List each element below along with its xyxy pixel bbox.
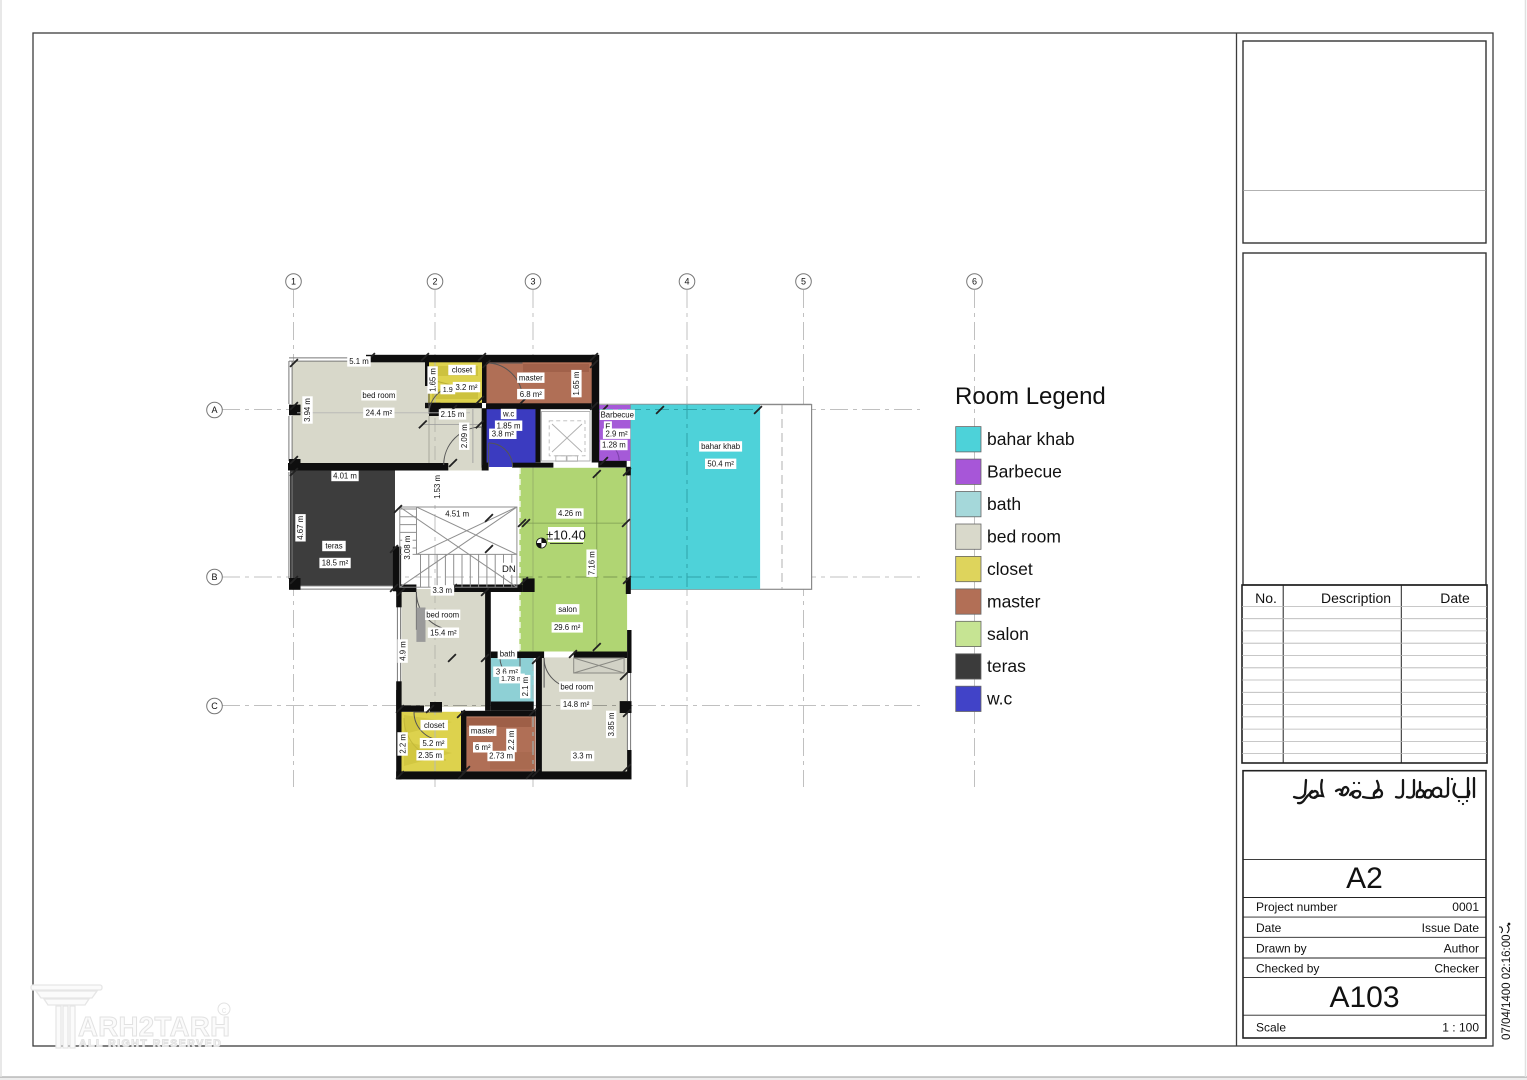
svg-text:4.9 m: 4.9 m: [398, 641, 407, 661]
svg-text:1.53 m: 1.53 m: [433, 475, 442, 499]
svg-text:3.3 m: 3.3 m: [433, 586, 453, 595]
svg-text:2.2 m: 2.2 m: [507, 731, 516, 751]
svg-text:2: 2: [432, 277, 437, 287]
svg-text:C: C: [211, 701, 218, 711]
svg-text:Barbecue: Barbecue: [987, 462, 1062, 482]
svg-text:1: 1: [291, 277, 296, 287]
svg-text:closet: closet: [987, 559, 1033, 579]
svg-text:bed room: bed room: [362, 391, 395, 400]
svg-text:Room Legend: Room Legend: [955, 383, 1106, 410]
svg-text:closet: closet: [424, 721, 445, 730]
svg-text:bed room: bed room: [560, 682, 593, 691]
svg-text:5.1 m: 5.1 m: [349, 357, 369, 366]
svg-text:No.: No.: [1255, 590, 1277, 606]
svg-text:A2: A2: [1346, 862, 1383, 895]
svg-text:6: 6: [972, 277, 977, 287]
svg-text:2.2 m: 2.2 m: [398, 734, 407, 754]
svg-text:1.65 m: 1.65 m: [428, 368, 437, 392]
svg-text:A103: A103: [1329, 981, 1399, 1014]
svg-text:Issue Date: Issue Date: [1422, 921, 1480, 935]
svg-text:teras: teras: [987, 656, 1026, 676]
svg-text:bed room: bed room: [987, 527, 1061, 547]
svg-text:4: 4: [684, 277, 689, 287]
svg-text:18.5 m²: 18.5 m²: [322, 559, 349, 568]
svg-text:closet: closet: [452, 366, 473, 375]
svg-text:4.67 m: 4.67 m: [296, 516, 305, 540]
svg-text:3: 3: [530, 277, 535, 287]
svg-text:2.9 m²: 2.9 m²: [606, 429, 628, 438]
svg-text:Project number: Project number: [1256, 900, 1337, 914]
svg-text:29.6 m²: 29.6 m²: [554, 623, 581, 632]
svg-text:teras: teras: [325, 542, 342, 551]
svg-text:bed room: bed room: [426, 611, 459, 620]
svg-text:3.2 m²: 3.2 m²: [455, 383, 477, 392]
svg-text:salon: salon: [558, 605, 577, 614]
svg-text:bahar khab: bahar khab: [701, 442, 741, 451]
svg-text:5: 5: [801, 277, 806, 287]
svg-text:Date: Date: [1256, 921, 1282, 935]
svg-text:4.51 m: 4.51 m: [445, 510, 469, 519]
svg-text:Drawn by: Drawn by: [1256, 942, 1307, 956]
svg-text:master: master: [519, 373, 543, 382]
svg-text:2.1 m: 2.1 m: [521, 677, 530, 697]
svg-text:6.8 m²: 6.8 m²: [520, 390, 542, 399]
svg-text:24.4 m²: 24.4 m²: [366, 409, 393, 418]
svg-text:2.73 m: 2.73 m: [489, 752, 513, 761]
svg-text:bath: bath: [987, 494, 1021, 514]
svg-text:3.94 m: 3.94 m: [303, 398, 312, 422]
svg-text:Date: Date: [1440, 590, 1470, 606]
svg-text:6 m²: 6 m²: [475, 743, 491, 752]
svg-text:1 : 100: 1 : 100: [1442, 1021, 1479, 1035]
svg-text:w.c: w.c: [502, 410, 514, 419]
svg-text:14.8 m²: 14.8 m²: [563, 700, 590, 709]
svg-text:07/04/1400 02:16:00: 07/04/1400 02:16:00: [1501, 934, 1513, 1040]
svg-text:B: B: [211, 572, 217, 582]
svg-text:salon: salon: [987, 624, 1029, 644]
svg-text:5.2 m²: 5.2 m²: [422, 739, 444, 748]
svg-text:3.3 m: 3.3 m: [573, 752, 593, 761]
svg-text:Barbecue: Barbecue: [601, 411, 634, 420]
svg-text:±10.40: ±10.40: [546, 528, 586, 543]
svg-text:0001: 0001: [1452, 900, 1479, 914]
svg-text:3.08 m: 3.08 m: [403, 536, 412, 560]
svg-text:Scale: Scale: [1256, 1021, 1286, 1035]
svg-text:1.28 m: 1.28 m: [602, 441, 626, 450]
svg-text:Description: Description: [1321, 590, 1391, 606]
svg-text:1.9: 1.9: [443, 385, 453, 394]
svg-text:DN: DN: [502, 564, 516, 575]
svg-text:Checker: Checker: [1434, 962, 1479, 976]
svg-text:3.8 m²: 3.8 m²: [492, 430, 514, 439]
svg-text:bahar khab: bahar khab: [987, 429, 1075, 449]
svg-text:master: master: [471, 727, 495, 736]
svg-text:3.85 m: 3.85 m: [607, 712, 616, 736]
svg-text:w.c: w.c: [986, 689, 1013, 709]
svg-text:A: A: [211, 405, 217, 415]
svg-text:2.09 m: 2.09 m: [460, 424, 469, 448]
svg-text:c: c: [222, 1005, 227, 1015]
svg-text:2.35 m: 2.35 m: [418, 751, 442, 760]
svg-text:bath: bath: [500, 650, 515, 659]
svg-text:Checked by: Checked by: [1256, 962, 1319, 976]
svg-text:2.15 m: 2.15 m: [441, 410, 465, 419]
svg-text:7.16 m: 7.16 m: [587, 551, 596, 575]
svg-text:50.4 m²: 50.4 m²: [707, 460, 734, 469]
svg-text:4.01 m: 4.01 m: [333, 472, 357, 481]
svg-text:master: master: [987, 591, 1041, 611]
svg-text:4.26 m: 4.26 m: [558, 509, 582, 518]
svg-text:15.4 m²: 15.4 m²: [430, 628, 457, 637]
svg-text:Author: Author: [1444, 942, 1479, 956]
svg-text:1.78 m: 1.78 m: [501, 674, 523, 683]
svg-text:ALL RIGHT RESERVED: ALL RIGHT RESERVED: [79, 1038, 222, 1050]
svg-text:1.65 m: 1.65 m: [572, 372, 581, 396]
